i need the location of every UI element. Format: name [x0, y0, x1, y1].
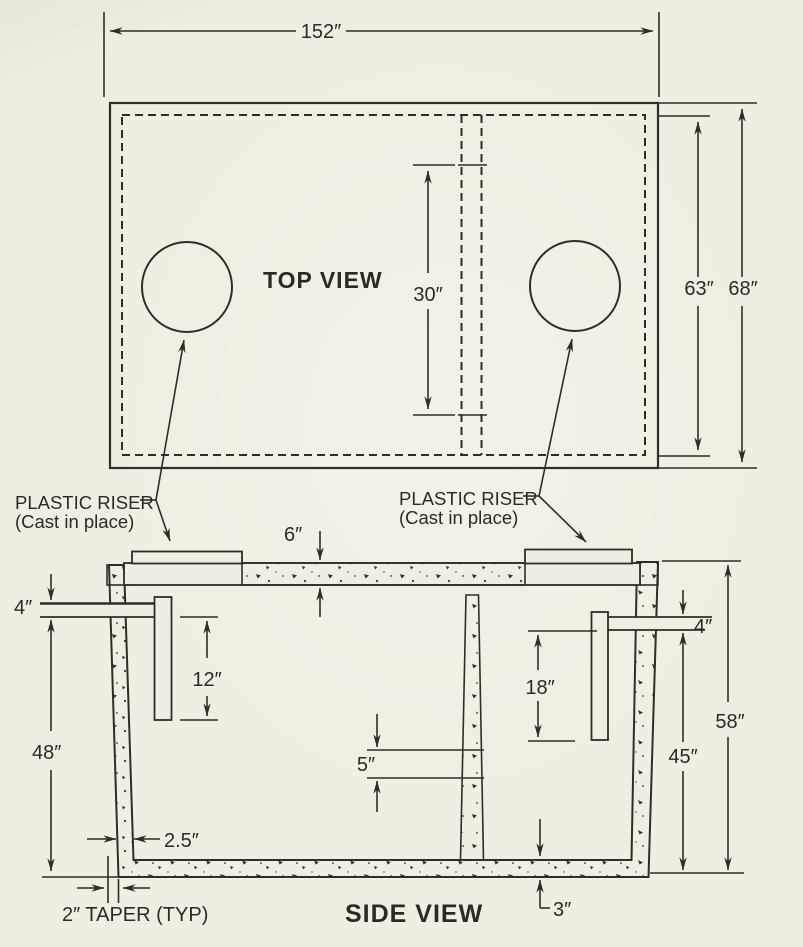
- inlet-pipe-body: [40, 604, 155, 617]
- tank-inner-wall-dashed: [122, 115, 645, 455]
- dim-label-63: 63″: [684, 278, 713, 300]
- drawing-canvas: TOP VIEW 152″ 30″ 63″ 68″ PLASTIC R: [0, 0, 803, 947]
- leader-to-riser: [156, 500, 170, 541]
- dim-label-5: 5″: [357, 754, 375, 776]
- dim-overall-length: [104, 12, 659, 97]
- leader-to-opening: [156, 340, 184, 500]
- leader-to-opening: [539, 339, 572, 496]
- riser-left-label-1: PLASTIC RISER: [15, 492, 154, 513]
- tank-outline-top: [110, 103, 658, 468]
- dim-label-68: 68″: [728, 278, 757, 300]
- riser-left-label-2: (Cast in place): [15, 511, 134, 532]
- inlet-baffle-tee: [155, 597, 172, 720]
- dim-label-3: 3″: [553, 899, 571, 921]
- riser-opening-left: [142, 242, 232, 332]
- dim-label-152: 152″: [301, 21, 341, 43]
- center-baffle-wall: [461, 595, 484, 860]
- dim-label-12: 12″: [192, 669, 221, 691]
- riser-right-label-1: PLASTIC RISER: [399, 488, 538, 509]
- leader-to-riser: [539, 496, 586, 542]
- septic-tank-drawing: TOP VIEW 152″ 30″ 63″ 68″ PLASTIC R: [0, 0, 803, 947]
- plastic-riser-left: [132, 552, 242, 564]
- callout-riser-right: [523, 339, 586, 542]
- dim-label-58: 58″: [715, 711, 744, 733]
- dim-label-4-outlet: 4″: [694, 616, 712, 638]
- wall-top-right: [640, 562, 658, 585]
- dim-label-30: 30″: [413, 284, 442, 306]
- dim-label-6: 6″: [284, 524, 302, 546]
- riser-right-label-2: (Cast in place): [399, 507, 518, 528]
- outlet-pipe-body: [608, 618, 660, 631]
- top-view: [110, 103, 658, 468]
- side-view-title: SIDE VIEW: [345, 900, 483, 928]
- side-view: [40, 550, 712, 878]
- dim-label-45: 45″: [668, 746, 697, 768]
- dim-label-4-inlet: 4″: [14, 597, 32, 619]
- riser-opening-right: [530, 241, 620, 331]
- tank-lid-concrete: [242, 563, 525, 585]
- plastic-riser-right: [525, 550, 632, 564]
- dim-label-48: 48″: [32, 742, 61, 764]
- dim-label-18: 18″: [525, 677, 554, 699]
- dim-label-2-5: 2.5″: [164, 830, 199, 852]
- top-view-title: TOP VIEW: [263, 267, 383, 293]
- dim-label-taper: 2″ TAPER (TYP): [62, 904, 208, 926]
